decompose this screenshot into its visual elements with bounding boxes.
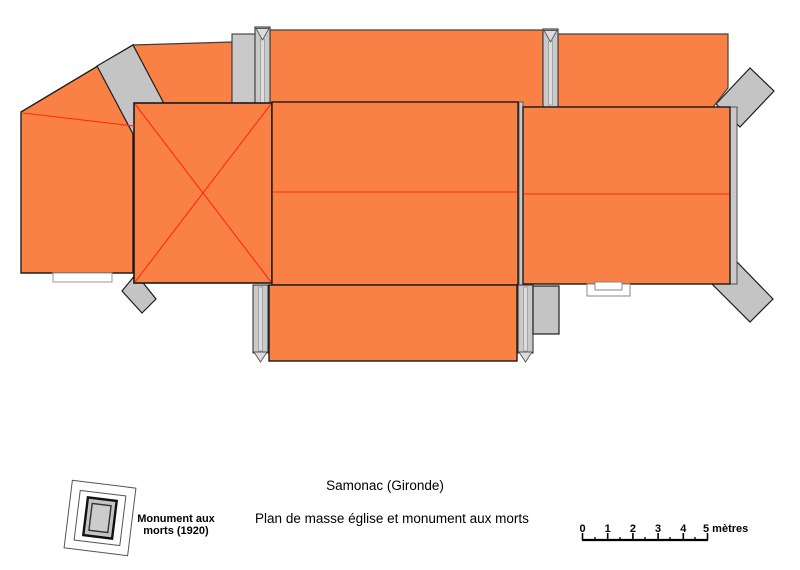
nave-roof <box>272 102 518 285</box>
scale-label-4: 4 <box>680 523 687 535</box>
scale-label-0: 0 <box>579 523 585 535</box>
scale-bar: 0 1 2 3 4 5 mètres <box>579 523 748 540</box>
scale-label-1: 1 <box>605 523 611 535</box>
nave-upper-roof <box>270 30 543 107</box>
pier-pinnacle-west <box>255 27 270 103</box>
monument-legend-line1: Monument aux <box>137 513 215 525</box>
plan-location-title: Samonac (Gironde) <box>326 478 444 493</box>
church-plan <box>21 27 774 362</box>
pier-chapel-east <box>518 285 533 362</box>
site-plan-drawing: Monument aux morts (1920) Samonac (Giron… <box>0 0 800 570</box>
plan-caption: Plan de masse église et monument aux mor… <box>255 511 529 526</box>
chevet-upper-roof <box>558 34 728 107</box>
west-step-outline <box>53 273 112 282</box>
pier-pinnacle-east <box>543 29 558 107</box>
monument-legend-line2: morts (1920) <box>143 525 209 537</box>
scale-label-2: 2 <box>630 523 636 535</box>
scale-label-5-metres: 5 mètres <box>703 523 748 535</box>
pier-plain-west <box>232 34 255 103</box>
scale-label-3: 3 <box>655 523 661 535</box>
pier-chapel-west <box>253 285 268 362</box>
east-wall-strip <box>730 107 737 284</box>
plan-canvas: Monument aux morts (1920) Samonac (Giron… <box>0 0 800 570</box>
monument-symbol <box>64 480 136 555</box>
monument-stele <box>89 503 111 532</box>
south-step-inner <box>595 282 622 290</box>
south-wall-block <box>533 286 559 334</box>
chapel-roof <box>269 285 517 361</box>
bell-tower-roof <box>134 103 272 283</box>
choir-roof <box>523 107 730 284</box>
